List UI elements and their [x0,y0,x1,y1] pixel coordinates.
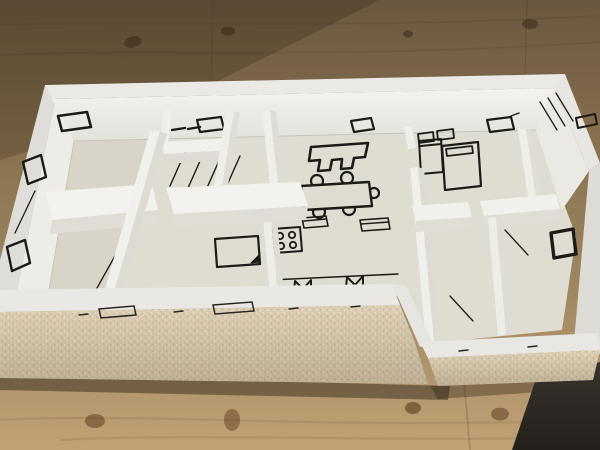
photo-vignette [0,0,600,450]
photo-architectural-model [0,0,600,450]
photo-canvas [0,0,600,450]
